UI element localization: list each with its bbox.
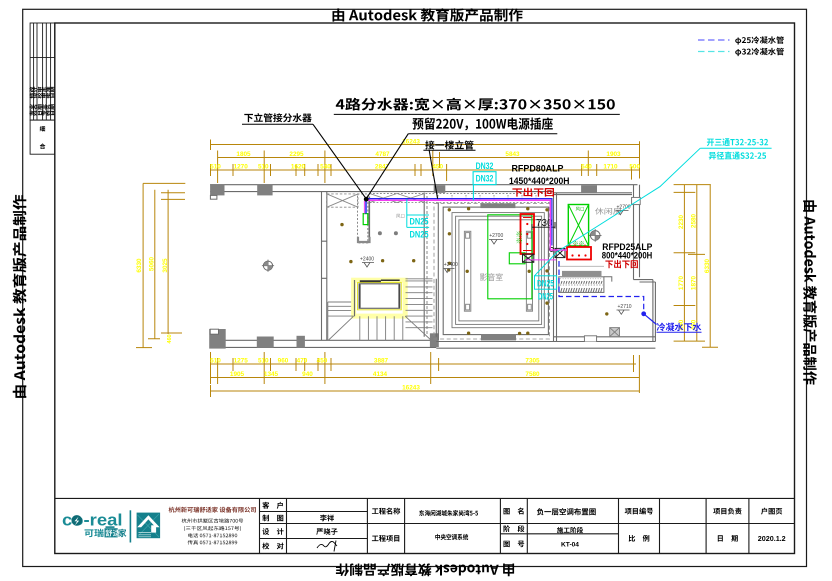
svg-text:KT-04: KT-04 bbox=[561, 542, 579, 549]
svg-text:1710: 1710 bbox=[603, 164, 618, 171]
svg-text:1770: 1770 bbox=[678, 275, 685, 290]
svg-text:510: 510 bbox=[210, 164, 221, 171]
svg-text:DN25: DN25 bbox=[538, 292, 553, 303]
svg-text:540: 540 bbox=[581, 164, 592, 171]
svg-text:DN25: DN25 bbox=[537, 279, 554, 290]
svg-text:7305: 7305 bbox=[525, 358, 540, 365]
svg-text:1450*440*200H: 1450*440*200H bbox=[509, 176, 570, 186]
svg-text:5060: 5060 bbox=[149, 256, 156, 271]
svg-text:+2400: +2400 bbox=[360, 257, 374, 263]
svg-text:510: 510 bbox=[258, 358, 269, 365]
svg-text:6330: 6330 bbox=[136, 258, 143, 273]
svg-text:1905: 1905 bbox=[230, 371, 245, 378]
svg-text:+2700: +2700 bbox=[489, 233, 503, 239]
svg-text:DN25: DN25 bbox=[410, 216, 430, 227]
svg-text:800*440*200H: 800*440*200H bbox=[602, 251, 653, 261]
svg-text:2020.1.2: 2020.1.2 bbox=[758, 534, 786, 543]
svg-text:1270: 1270 bbox=[234, 164, 249, 171]
svg-text:1345: 1345 bbox=[264, 371, 279, 378]
svg-text:4787: 4787 bbox=[375, 151, 390, 158]
svg-text:3887: 3887 bbox=[374, 358, 389, 365]
svg-text:1620: 1620 bbox=[291, 164, 306, 171]
svg-text:5843: 5843 bbox=[505, 151, 520, 158]
svg-text:450: 450 bbox=[432, 164, 443, 171]
svg-text:3025: 3025 bbox=[162, 258, 169, 273]
svg-text:2580: 2580 bbox=[691, 213, 698, 228]
svg-text:RFPD80ALP: RFPD80ALP bbox=[512, 164, 564, 174]
svg-text:7580: 7580 bbox=[525, 371, 540, 378]
svg-text:DN32: DN32 bbox=[476, 161, 494, 172]
svg-text:DN25: DN25 bbox=[410, 229, 430, 240]
svg-text:2295: 2295 bbox=[289, 151, 304, 158]
svg-text:2230: 2230 bbox=[678, 214, 685, 229]
svg-text:460: 460 bbox=[167, 334, 173, 343]
svg-text:1805: 1805 bbox=[236, 151, 251, 158]
svg-text:940: 940 bbox=[302, 371, 313, 378]
svg-text:DN32: DN32 bbox=[476, 173, 494, 184]
svg-text:+2710: +2710 bbox=[618, 304, 632, 310]
svg-text:510: 510 bbox=[210, 358, 221, 365]
svg-text:540: 540 bbox=[320, 164, 331, 171]
svg-text:510: 510 bbox=[258, 164, 269, 171]
svg-text:470: 470 bbox=[297, 358, 308, 365]
svg-text:6330: 6330 bbox=[704, 258, 711, 273]
svg-text:+2400: +2400 bbox=[444, 262, 458, 268]
svg-text:500: 500 bbox=[629, 164, 640, 171]
svg-text:4134: 4134 bbox=[373, 371, 388, 378]
svg-text:450: 450 bbox=[317, 358, 328, 365]
svg-text:16243: 16243 bbox=[402, 385, 420, 392]
svg-text:1870: 1870 bbox=[691, 275, 698, 290]
svg-text:1903: 1903 bbox=[606, 151, 621, 158]
svg-text:1275: 1275 bbox=[234, 358, 249, 365]
svg-text:960: 960 bbox=[278, 358, 289, 365]
